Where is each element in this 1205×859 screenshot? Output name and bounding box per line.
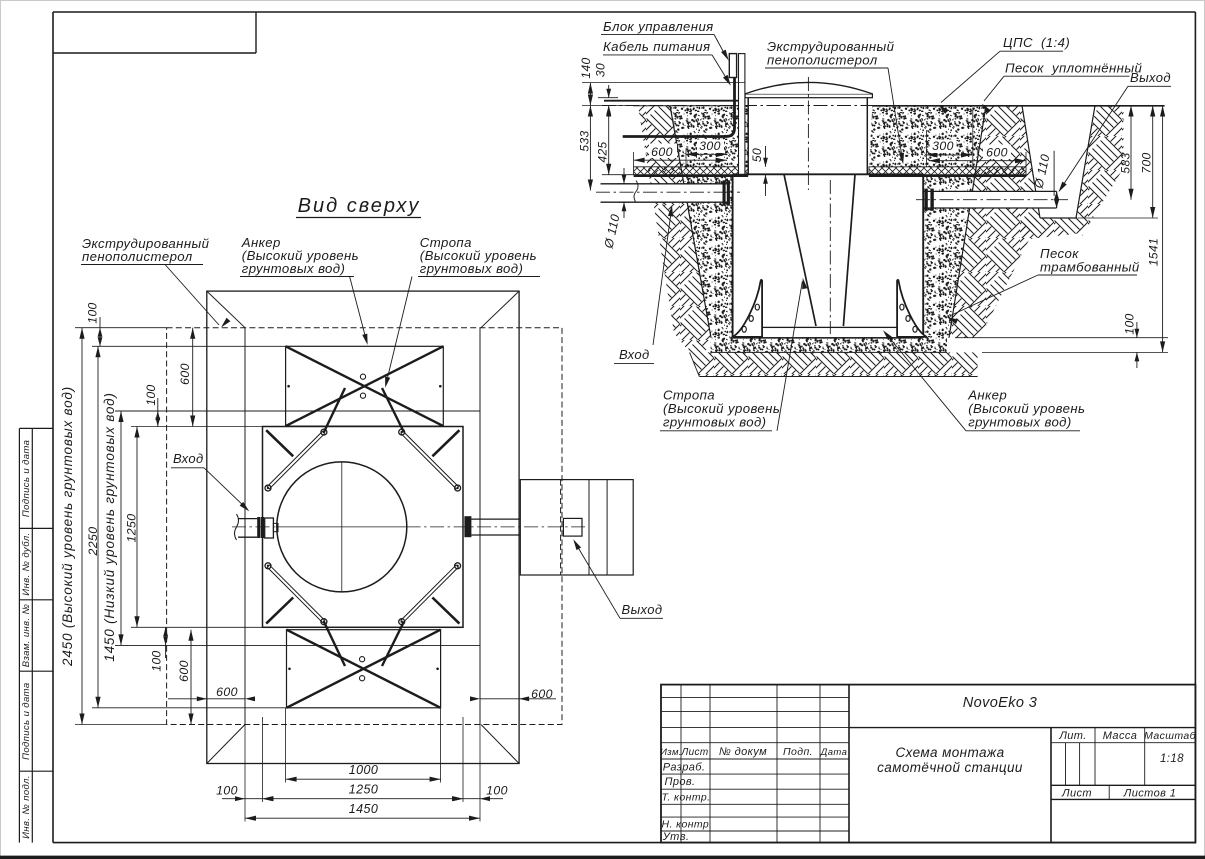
svg-text:Схема монтажа: Схема монтажа bbox=[895, 745, 1004, 760]
svg-text:Вход: Вход bbox=[619, 347, 650, 362]
svg-text:30: 30 bbox=[594, 63, 608, 77]
svg-text:600: 600 bbox=[216, 685, 238, 699]
svg-text:Т. контр.: Т. контр. bbox=[662, 792, 711, 804]
svg-text:600: 600 bbox=[177, 660, 191, 682]
svg-text:Масштаб: Масштаб bbox=[1144, 730, 1197, 742]
svg-text:425: 425 bbox=[596, 141, 610, 162]
svg-text:пенополистерол: пенополистерол bbox=[82, 249, 193, 264]
svg-text:100: 100 bbox=[1123, 313, 1137, 334]
svg-text:Блок управления: Блок управления bbox=[603, 19, 714, 34]
svg-text:Дата: Дата bbox=[820, 747, 848, 758]
svg-text:300: 300 bbox=[699, 139, 721, 153]
svg-text:Изм.: Изм. bbox=[660, 747, 682, 758]
svg-text:600: 600 bbox=[651, 145, 673, 159]
svg-text:Инв. № дубл.: Инв. № дубл. bbox=[21, 532, 32, 595]
svg-text:Взам. инв. №: Взам. инв. № bbox=[21, 604, 32, 668]
svg-text:грунтовых вод): грунтовых вод) bbox=[420, 261, 523, 276]
svg-text:Н. контр.: Н. контр. bbox=[662, 819, 713, 831]
svg-text:700: 700 bbox=[1140, 152, 1154, 173]
svg-text:50: 50 bbox=[750, 148, 764, 162]
svg-text:пенополистерол: пенополистерол bbox=[767, 53, 878, 68]
svg-text:1450: 1450 bbox=[349, 802, 378, 816]
svg-text:100: 100 bbox=[216, 784, 238, 798]
svg-text:300: 300 bbox=[932, 139, 954, 153]
svg-text:Пров.: Пров. bbox=[664, 776, 695, 788]
svg-text:140: 140 bbox=[579, 57, 593, 78]
svg-text:100: 100 bbox=[144, 384, 158, 405]
svg-text:583: 583 bbox=[1119, 152, 1133, 173]
svg-text:Масса: Масса bbox=[1103, 730, 1138, 742]
svg-text:Кабель питания: Кабель питания bbox=[603, 39, 710, 54]
svg-text:100: 100 bbox=[486, 784, 508, 798]
svg-text:1:18: 1:18 bbox=[1160, 753, 1184, 765]
svg-text:Выход: Выход bbox=[1130, 70, 1171, 85]
svg-text:100: 100 bbox=[86, 302, 100, 323]
svg-text:Подпись и дата: Подпись и дата bbox=[21, 440, 32, 517]
svg-text:Лист: Лист bbox=[680, 747, 708, 758]
svg-text:1000: 1000 bbox=[349, 763, 378, 777]
svg-text:самотёчной станции: самотёчной станции bbox=[877, 760, 1023, 775]
svg-text:Листов 1: Листов 1 bbox=[1123, 788, 1176, 800]
svg-text:1250: 1250 bbox=[125, 514, 139, 543]
svg-text:600: 600 bbox=[178, 363, 192, 385]
svg-text:Утв.: Утв. bbox=[662, 831, 690, 843]
svg-text:грунтовых вод): грунтовых вод) bbox=[663, 415, 766, 430]
svg-text:Песок уплотнённый: Песок уплотнённый bbox=[1005, 61, 1142, 76]
svg-text:Лит.: Лит. bbox=[1058, 730, 1086, 742]
svg-text:533: 533 bbox=[578, 130, 592, 151]
svg-text:Инв. № подл.: Инв. № подл. bbox=[21, 775, 32, 839]
svg-text:1250: 1250 bbox=[349, 783, 378, 797]
svg-text:Разраб.: Разраб. bbox=[663, 762, 706, 774]
svg-text:2450 (Высокий уровень грунтовы: 2450 (Высокий уровень грунтовых вод) bbox=[60, 386, 75, 667]
svg-text:NovoEko 3: NovoEko 3 bbox=[963, 695, 1038, 711]
svg-text:№ докум: № докум bbox=[719, 746, 767, 758]
svg-text:Подп.: Подп. bbox=[783, 746, 813, 758]
svg-text:грунтовых вод): грунтовых вод) bbox=[242, 261, 345, 276]
svg-text:1541: 1541 bbox=[1147, 238, 1161, 266]
svg-text:600: 600 bbox=[531, 687, 553, 701]
svg-text:100: 100 bbox=[150, 650, 164, 671]
svg-text:Подпись и дата: Подпись и дата bbox=[21, 682, 32, 759]
svg-text:1450 (Низкий уровень грунтовых: 1450 (Низкий уровень грунтовых вод) bbox=[102, 392, 117, 661]
svg-text:ЦПС (1:4): ЦПС (1:4) bbox=[1003, 35, 1070, 50]
svg-text:трамбованный: трамбованный bbox=[1040, 260, 1140, 275]
svg-text:Лист: Лист bbox=[1061, 788, 1092, 800]
svg-text:2250: 2250 bbox=[86, 527, 100, 557]
svg-text:Выход: Выход bbox=[622, 602, 663, 617]
svg-text:грунтовых вод): грунтовых вод) bbox=[968, 415, 1071, 430]
svg-text:Вид сверху: Вид сверху bbox=[298, 195, 421, 217]
svg-text:600: 600 bbox=[986, 146, 1008, 160]
svg-text:Вход: Вход bbox=[173, 451, 204, 466]
